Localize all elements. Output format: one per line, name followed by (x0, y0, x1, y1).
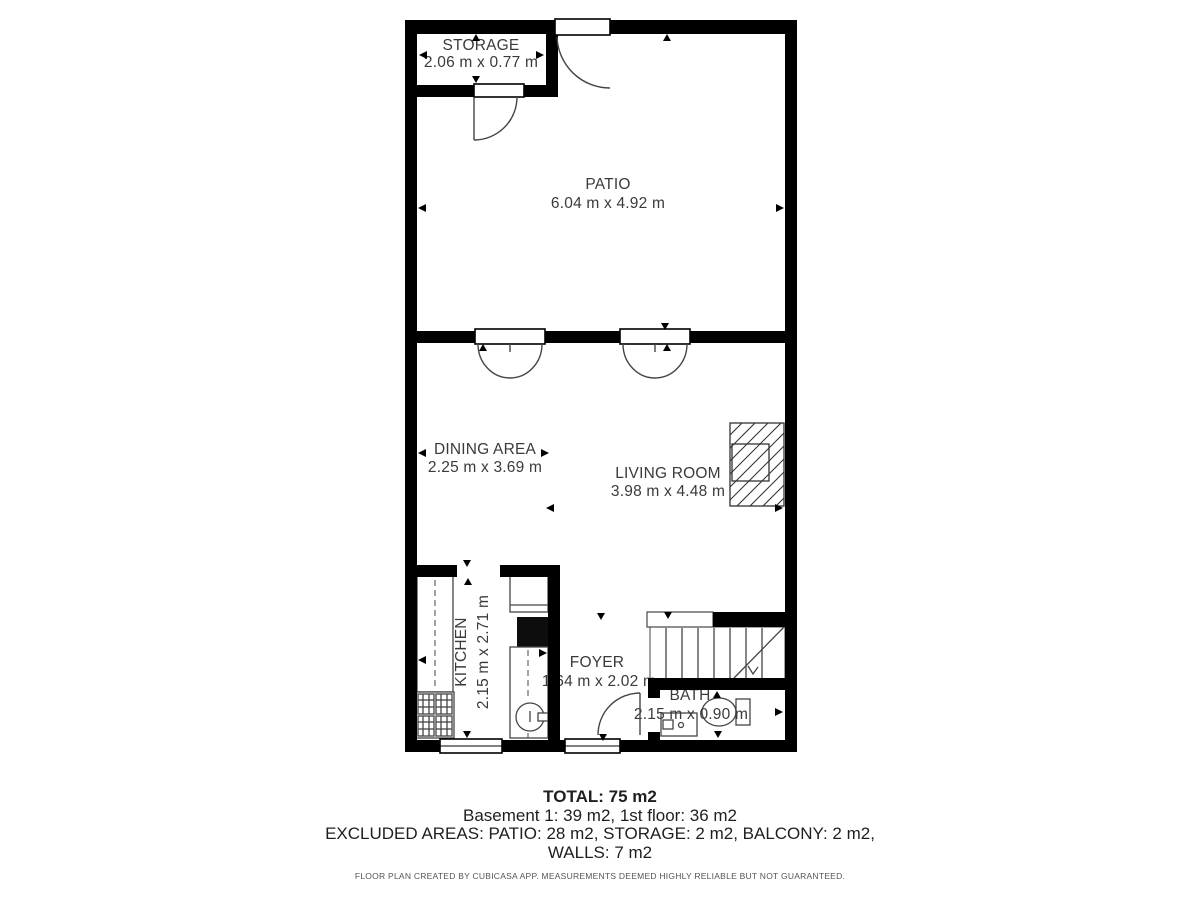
area-summary: TOTAL: 75 m2 Basement 1: 39 m2, 1st floo… (0, 788, 1200, 862)
summary-excluded-line2: WALLS: 7 m2 (0, 844, 1200, 863)
patio-door-right-swing (623, 344, 687, 378)
patio-door-left-swing (478, 344, 542, 378)
patio-door-left-leaf (475, 329, 545, 344)
balcony-door-leaf (555, 19, 610, 35)
disclaimer-text: FLOOR PLAN CREATED BY CUBICASA APP. MEAS… (0, 871, 1200, 881)
entry-threshold (565, 739, 620, 753)
storage-door-swing (474, 97, 517, 140)
balcony-door-swing (557, 37, 610, 88)
walls (405, 20, 797, 752)
floor-plan-page: STORAGE 2.06 m x 0.77 m PATIO 6.04 m x 4… (0, 0, 1200, 900)
bath-door-swing (598, 693, 640, 735)
storage-door-opening (474, 84, 524, 97)
summary-floors: Basement 1: 39 m2, 1st floor: 36 m2 (0, 807, 1200, 826)
walls-layer (0, 0, 1200, 900)
summary-total: TOTAL: 75 m2 (0, 788, 1200, 807)
dimension-ticks (418, 34, 784, 741)
summary-excluded-line1: EXCLUDED AREAS: PATIO: 28 m2, STORAGE: 2… (0, 825, 1200, 844)
kitchen-window (440, 739, 502, 753)
patio-door-right-leaf (620, 329, 690, 344)
